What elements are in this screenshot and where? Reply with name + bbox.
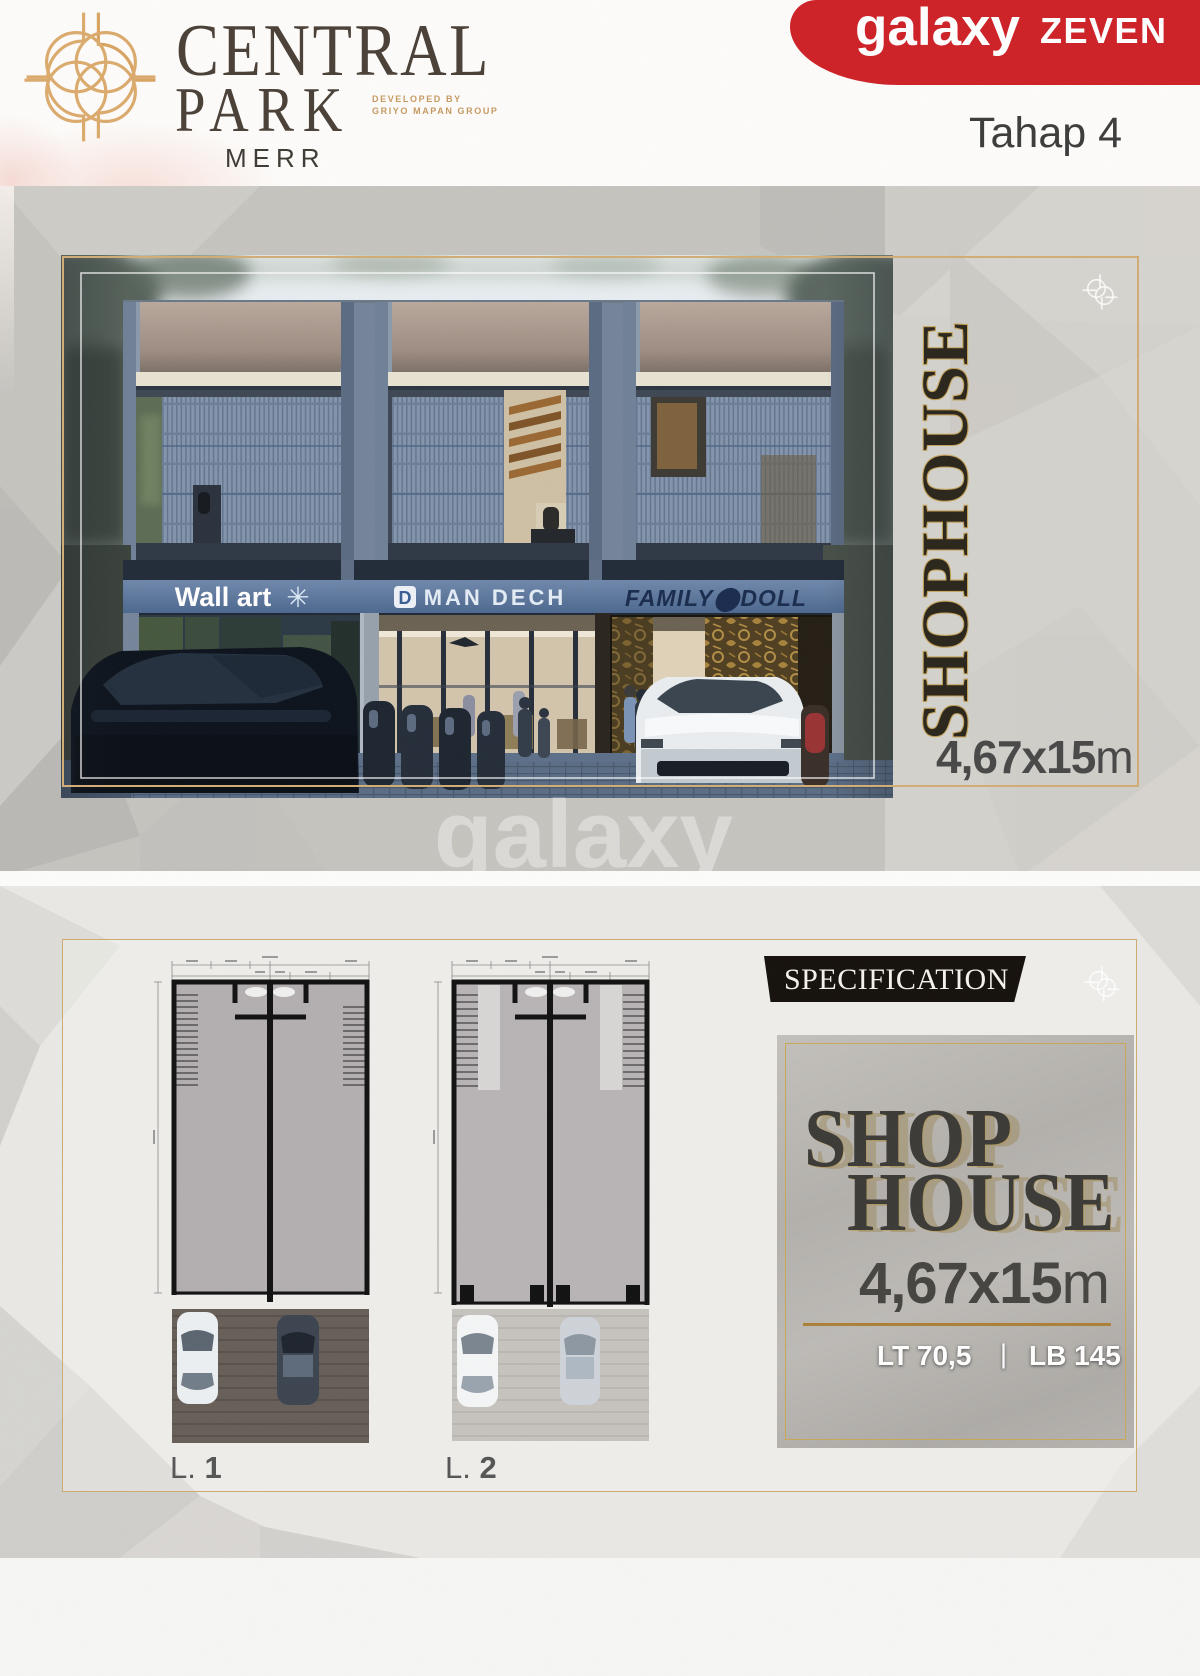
svg-text:SHOPHOUSE: SHOPHOUSE [909,320,982,740]
